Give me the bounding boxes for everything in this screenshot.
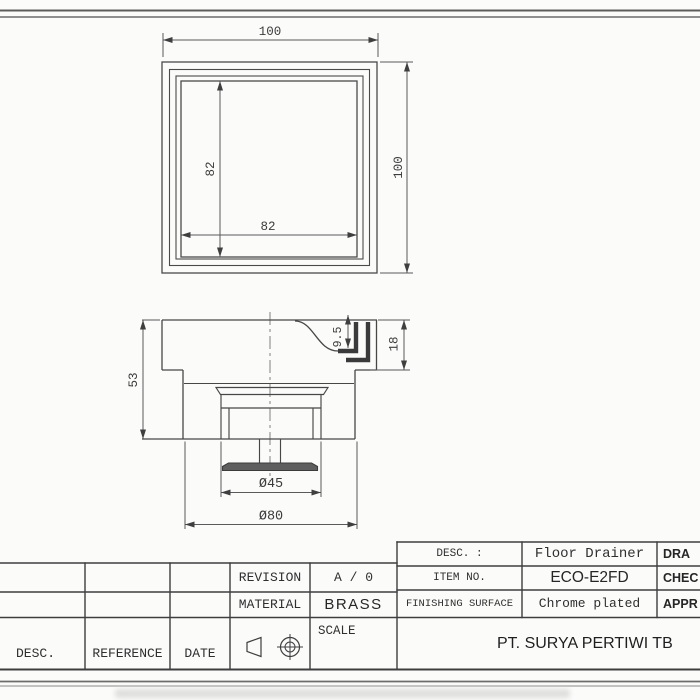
finishing-surface-label: FINISHING SURFACE [397, 590, 522, 617]
sheet-top-border [0, 11, 700, 18]
material-label: MATERIAL [230, 592, 310, 617]
revision-value: A / 0 [310, 563, 397, 592]
top-view [162, 62, 377, 273]
top-view-ring-2 [170, 70, 370, 266]
scale-label: SCALE [310, 618, 397, 669]
sheet-bottom-border [0, 682, 700, 687]
dim-text-18: 18 [388, 336, 402, 351]
dim-text-9-5: 9.5 [332, 327, 345, 348]
revision-label: REVISION [230, 563, 310, 592]
drawing-sheet: 100 100 82 82 [0, 0, 700, 700]
company-name: PT. SURYA PERTIWI TB [397, 618, 700, 669]
dim-text-80: Ø80 [259, 510, 283, 525]
projection-symbols [247, 634, 303, 660]
date-column-label: DATE [170, 618, 230, 669]
section-bottom-disc [223, 463, 318, 471]
section-bell-cup [221, 395, 321, 439]
desc-label: DESC. : [397, 542, 522, 566]
top-view-outer-square [162, 62, 377, 273]
checked-label: CHEC [657, 566, 700, 590]
dim-text-53: 53 [127, 372, 141, 387]
approved-label: APPR [657, 590, 700, 617]
bottom-scan-smudge [115, 689, 570, 698]
section-strainer-flange [216, 388, 328, 395]
dim-text-inner-height: 82 [204, 161, 218, 176]
item-no-value: ECO-E2FD [522, 566, 657, 590]
reference-column-label: REFERENCE [85, 618, 170, 669]
material-value: BRASS [310, 592, 397, 617]
finishing-surface-value: Chrome plated [522, 590, 657, 617]
dim-text-right-height: 100 [392, 156, 406, 179]
dim-text-45: Ø45 [259, 477, 283, 492]
desc-column-label: DESC. [0, 618, 85, 669]
dim-text-top-width: 100 [259, 25, 282, 39]
desc-value: Floor Drainer [522, 542, 657, 566]
dim-text-inner-width: 82 [260, 220, 275, 234]
projection-cone-icon [247, 638, 261, 657]
drawn-label: DRA [657, 542, 700, 566]
section-housing [142, 370, 355, 439]
item-no-label: ITEM NO. [397, 566, 522, 590]
